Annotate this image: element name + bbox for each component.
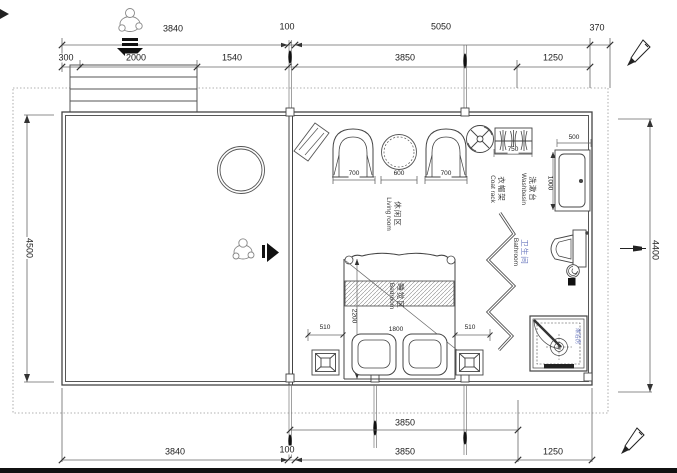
entry-person-icon (119, 9, 142, 32)
dim-top-370: 370 (588, 24, 605, 33)
living-room-label: 休闲区 Living room (385, 197, 401, 231)
dim-bed-2200: 2200 (350, 309, 357, 323)
dim-top2-1250: 1250 (542, 54, 564, 63)
nightstand-right (456, 350, 483, 375)
corner-mark (0, 9, 9, 19)
dim-bottom-3840: 3840 (164, 448, 186, 457)
dim-chair-left-700: 700 (349, 171, 360, 178)
frame-bottom-edge (0, 468, 677, 473)
pencil-icon-bottom (621, 428, 644, 454)
dim-right-4400: 4400 (651, 239, 660, 261)
dim-bed-1800: 1800 (389, 327, 403, 334)
dim-top2-300: 300 (57, 54, 74, 63)
dim-bottom-100: 100 (278, 446, 295, 455)
dim-bottom-1250: 1250 (542, 448, 564, 457)
dim-top2-2000: 2000 (125, 54, 147, 63)
entry-stairs (70, 65, 197, 112)
dim-wash-1000: 1000 (546, 176, 553, 190)
dim-bottom-3850: 3850 (394, 448, 416, 457)
dim-coat-750: 750 (508, 147, 519, 154)
dim-top2-3850: 3850 (394, 54, 416, 63)
bedroom-label: 睡觉区 Bedroom (388, 283, 404, 309)
shower-label: 淋浴房 (574, 328, 582, 345)
washbasin (551, 139, 592, 211)
dim-wash-500: 500 (569, 135, 580, 142)
coat-rack-label: 衣帽架 Coat rack (489, 175, 505, 203)
bathroom-label: 卫生间 Bathroom (512, 238, 528, 266)
washbasin-label: 洗漱台 Washbasin (520, 173, 536, 205)
dim-bed-510-right: 510 (465, 325, 476, 332)
dim-table-600: 600 (394, 171, 405, 178)
marker-icon-right (620, 246, 646, 252)
floor-plan: 3840 100 5050 370 300 2000 1540 3850 125… (0, 0, 677, 473)
nightstand-left (312, 350, 339, 375)
dim-left-4500: 4500 (25, 237, 34, 259)
floor-plan-linework (0, 0, 677, 473)
dim-top2-1540: 1540 (221, 54, 243, 63)
dim-top-3840: 3840 (162, 25, 184, 34)
pencil-icon-top (627, 40, 650, 66)
dim-chair-right-700: 700 (441, 171, 452, 178)
dim-top-100: 100 (278, 23, 295, 32)
dim-top-5050: 5050 (430, 23, 452, 32)
dim-bottom-inner-3850: 3850 (394, 419, 416, 428)
dim-bed-510-left: 510 (320, 325, 331, 332)
